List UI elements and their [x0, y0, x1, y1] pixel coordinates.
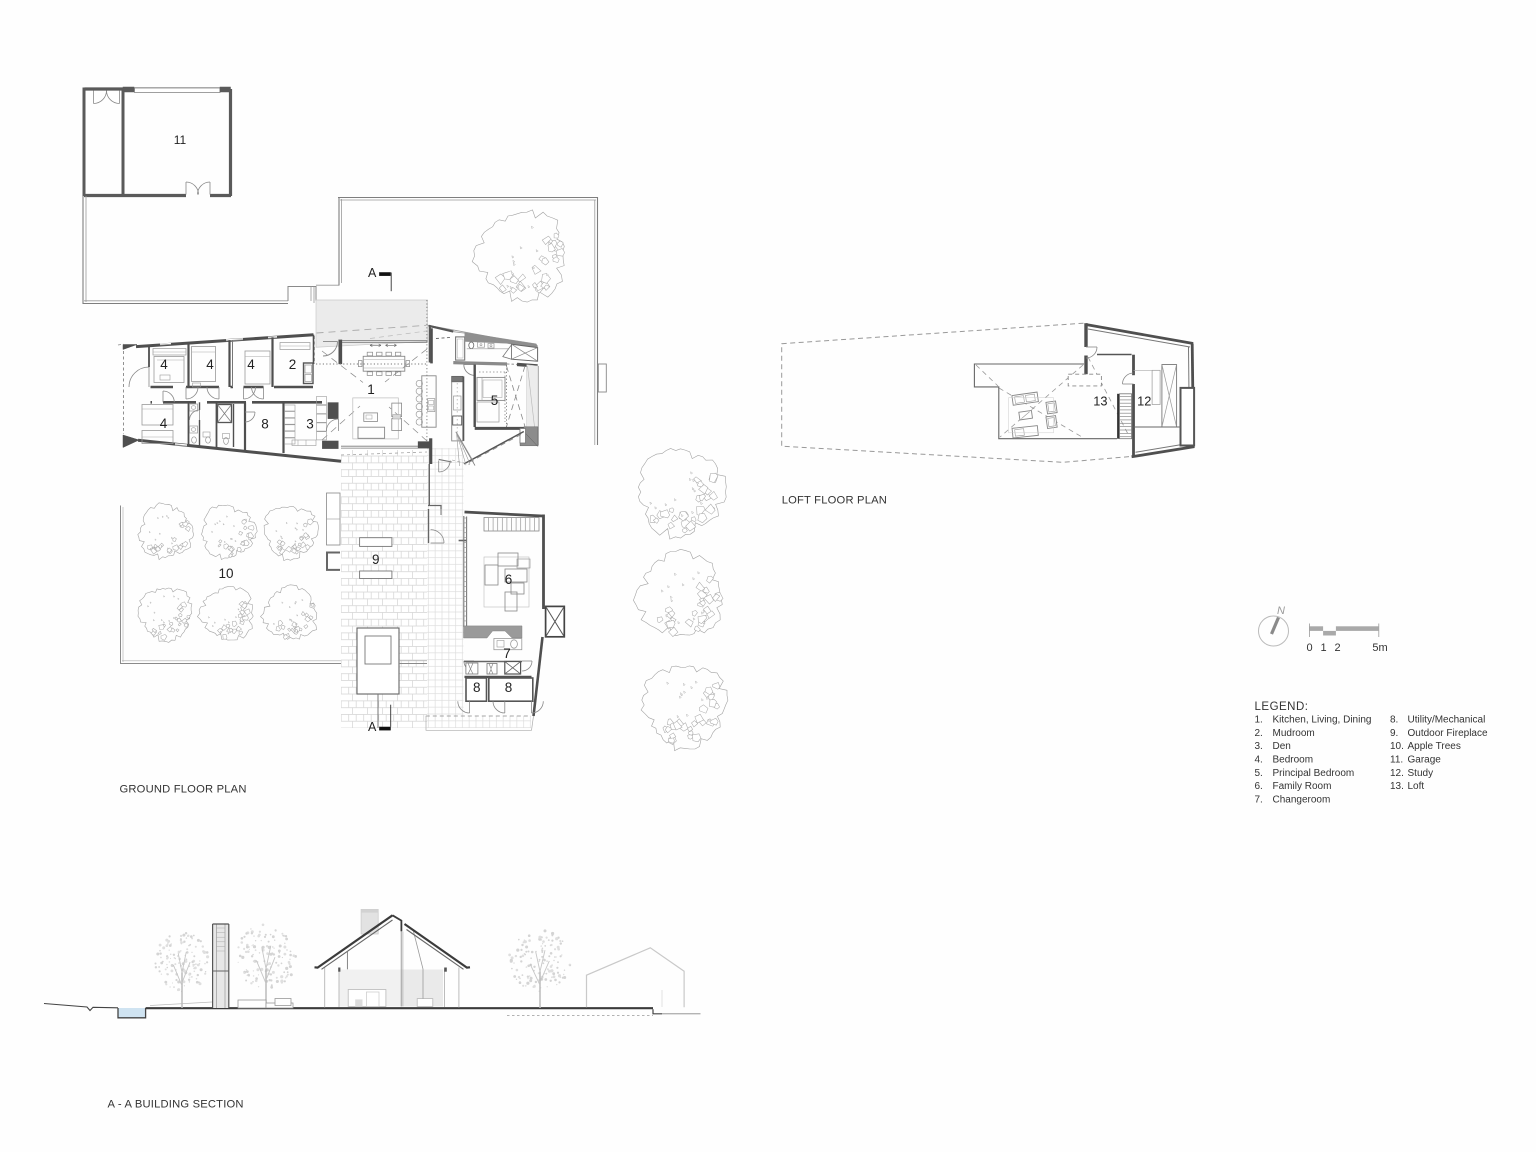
svg-text:Utility/Mechanical: Utility/Mechanical: [1408, 715, 1486, 726]
svg-text:N: N: [1277, 605, 1285, 617]
svg-text:3: 3: [306, 417, 314, 432]
svg-text:Principal Bedroom: Principal Bedroom: [1273, 768, 1355, 779]
svg-text:12: 12: [1137, 394, 1151, 409]
svg-text:Kitchen, Living, Dining: Kitchen, Living, Dining: [1273, 715, 1372, 726]
svg-text:GROUND FLOOR PLAN: GROUND FLOOR PLAN: [120, 784, 247, 796]
svg-text:6.: 6.: [1255, 781, 1263, 792]
svg-text:7.: 7.: [1255, 795, 1263, 806]
svg-text:13: 13: [1093, 394, 1107, 409]
svg-text:4: 4: [206, 357, 214, 372]
svg-text:0: 0: [1306, 642, 1312, 654]
svg-text:4: 4: [160, 416, 168, 431]
svg-text:8: 8: [473, 680, 481, 695]
svg-text:Family Room: Family Room: [1273, 781, 1332, 792]
svg-text:Changeroom: Changeroom: [1273, 795, 1331, 806]
svg-text:Apple Trees: Apple Trees: [1408, 741, 1461, 752]
svg-text:5m: 5m: [1372, 642, 1387, 654]
svg-text:2: 2: [1334, 642, 1340, 654]
svg-text:1.: 1.: [1255, 715, 1263, 726]
svg-text:6: 6: [505, 572, 513, 587]
svg-text:2: 2: [289, 357, 297, 372]
svg-text:A: A: [368, 720, 377, 734]
svg-text:9.: 9.: [1390, 728, 1398, 739]
svg-text:Mudroom: Mudroom: [1273, 728, 1315, 739]
svg-text:A - A BUILDING SECTION: A - A BUILDING SECTION: [108, 1099, 244, 1111]
svg-text:5.: 5.: [1255, 768, 1263, 779]
svg-text:1: 1: [367, 382, 375, 397]
svg-text:1: 1: [1320, 642, 1326, 654]
svg-text:13.: 13.: [1390, 781, 1404, 792]
svg-text:Study: Study: [1408, 768, 1434, 779]
svg-text:Bedroom: Bedroom: [1273, 755, 1314, 766]
svg-text:Garage: Garage: [1408, 755, 1442, 766]
svg-text:9: 9: [372, 552, 380, 567]
svg-text:3.: 3.: [1255, 741, 1263, 752]
svg-text:7: 7: [503, 646, 511, 661]
svg-text:Outdoor Fireplace: Outdoor Fireplace: [1408, 728, 1488, 739]
svg-text:11.: 11.: [1390, 755, 1403, 766]
svg-text:2.: 2.: [1255, 728, 1263, 739]
svg-text:10: 10: [218, 566, 233, 581]
svg-text:8.: 8.: [1390, 715, 1398, 726]
svg-text:LOFT FLOOR PLAN: LOFT FLOOR PLAN: [782, 495, 887, 507]
svg-text:5: 5: [491, 393, 499, 408]
svg-text:8: 8: [261, 417, 269, 432]
svg-text:4.: 4.: [1255, 755, 1263, 766]
svg-text:LEGEND:: LEGEND:: [1255, 701, 1309, 713]
svg-text:4: 4: [247, 357, 255, 372]
svg-text:A: A: [368, 266, 377, 280]
svg-text:4: 4: [160, 357, 168, 372]
svg-text:8: 8: [505, 680, 513, 695]
svg-text:10.: 10.: [1390, 741, 1404, 752]
svg-text:11: 11: [174, 133, 187, 147]
svg-text:Loft: Loft: [1408, 781, 1425, 792]
svg-text:12.: 12.: [1390, 768, 1404, 779]
svg-text:Den: Den: [1273, 741, 1291, 752]
